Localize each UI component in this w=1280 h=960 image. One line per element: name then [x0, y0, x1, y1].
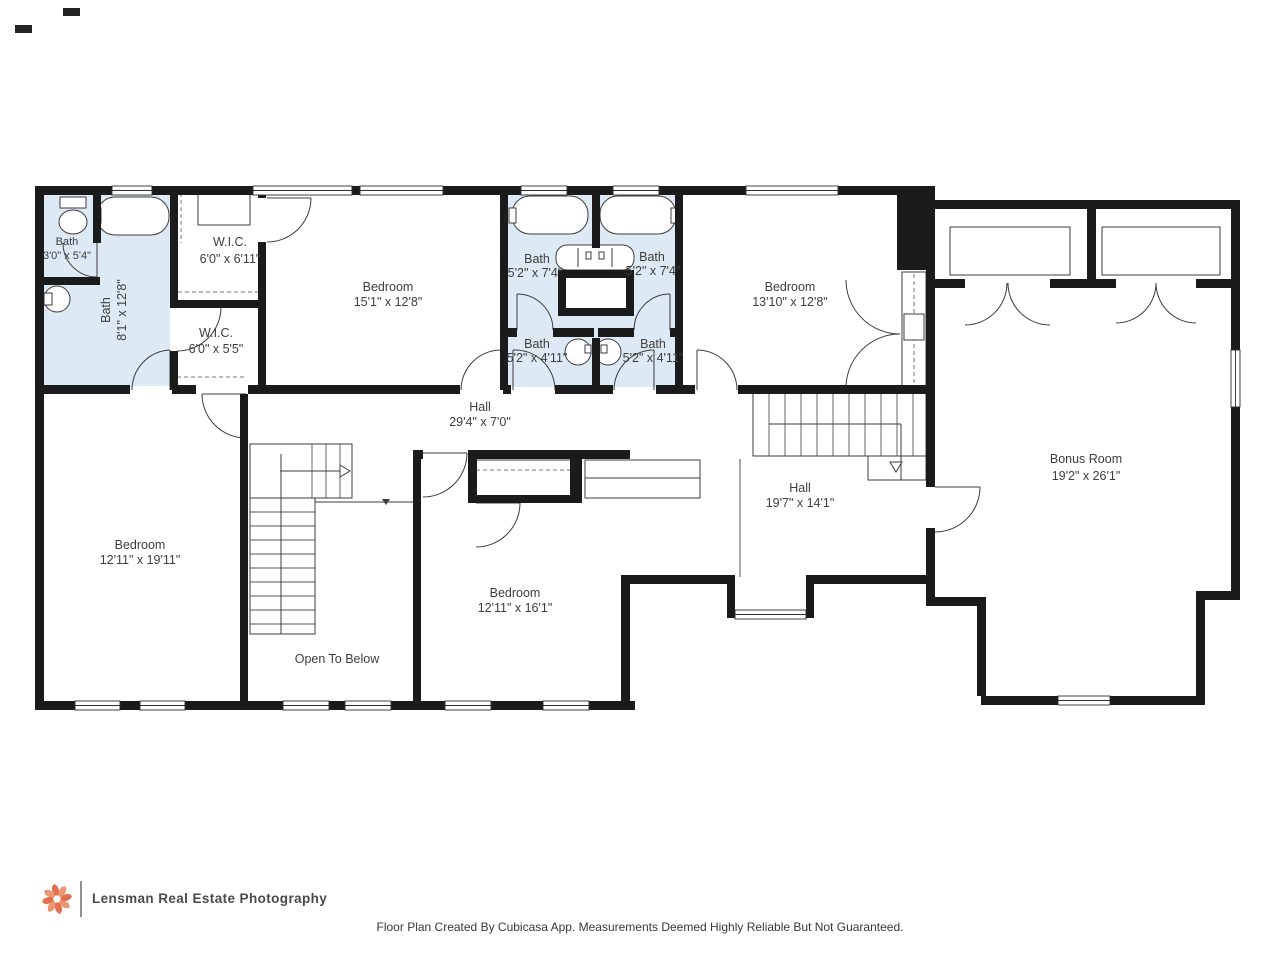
disclaimer-text: Floor Plan Created By Cubicasa App. Meas…	[0, 920, 1280, 934]
toilet-tank	[60, 197, 86, 208]
floor-plan: Bath 3'0" x 5'4" Bath 8'1" x 12'8" W.I.C…	[0, 0, 1280, 960]
toilet-bowl	[59, 210, 87, 234]
closet-shelf	[198, 193, 250, 225]
room-label-bath-lr-name: Bath	[640, 337, 666, 351]
window	[445, 701, 491, 710]
sink-faucet	[44, 293, 52, 305]
room-label-bath-lr-dims: 5'2" x 4'11"	[623, 351, 684, 365]
room-label-hall2-dims: 19'7" x 14'1"	[766, 496, 835, 510]
closet-shelf	[1102, 227, 1220, 275]
room-label-bonus-dims: 19'2" x 26'1"	[1052, 469, 1121, 483]
room-label-bath-ll-dims: 5'2" x 4'11"	[507, 351, 568, 365]
room-label-bedroom2-dims: 13'10" x 12'8"	[752, 295, 828, 309]
room-label-bonus-name: Bonus Room	[1050, 452, 1122, 466]
vanity	[556, 245, 634, 270]
closet	[474, 460, 572, 496]
room-label-open-to-below: Open To Below	[295, 652, 381, 666]
room-label-bath-ur-dims: 5'2" x 7'4"	[626, 264, 681, 278]
window	[360, 186, 443, 195]
stairs-up-arrow	[340, 465, 350, 477]
room-label-bedroom4-name: Bedroom	[490, 586, 541, 600]
bathtub	[600, 196, 676, 234]
room-label-bath-small-name: Bath	[56, 236, 79, 248]
room-label-bedroom3-name: Bedroom	[115, 538, 166, 552]
window	[75, 701, 120, 710]
room-label-bath-small-dims: 3'0" x 5'4"	[43, 250, 91, 262]
room-label-wic1-name: W.I.C.	[213, 235, 247, 249]
window	[543, 701, 589, 710]
room-label-bedroom3-dims: 12'11" x 19'11"	[100, 553, 181, 567]
room-label-hall2-name: Hall	[789, 481, 811, 495]
room-label-wic2-dims: 6'0" x 5'5"	[189, 342, 244, 356]
room-label-bedroom1-dims: 15'1" x 12'8"	[354, 295, 423, 309]
window	[253, 186, 352, 195]
window	[746, 186, 838, 195]
brand-name: Lensman Real Estate Photography	[92, 891, 327, 906]
bathtub	[97, 197, 169, 235]
window	[1058, 696, 1110, 705]
floor-plan-page: Bath 3'0" x 5'4" Bath 8'1" x 12'8" W.I.C…	[0, 0, 1280, 960]
window	[521, 186, 567, 195]
window	[283, 701, 329, 710]
window	[140, 701, 185, 710]
room-label-hall1-name: Hall	[469, 400, 491, 414]
room-label-bedroom1-name: Bedroom	[363, 280, 414, 294]
bathtub	[512, 196, 588, 234]
stairs-down-arrow	[890, 462, 902, 472]
window	[112, 186, 152, 195]
room-label-wic1-dims: 6'0" x 6'11"	[200, 252, 261, 266]
window	[735, 610, 806, 619]
window	[345, 701, 391, 710]
room-label-bath-ul-dims: 5'2" x 7'4"	[508, 266, 563, 280]
closet-shelf	[950, 227, 1070, 275]
room-label-bath-ll-name: Bath	[524, 337, 550, 351]
room-label-bath-ur-name: Bath	[639, 250, 665, 264]
corner-artifacts	[15, 8, 80, 33]
staircase-main	[753, 393, 926, 480]
room-label-wic2-name: W.I.C.	[199, 326, 233, 340]
room-label-bedroom2-name: Bedroom	[765, 280, 816, 294]
room-label-bath-ul-name: Bath	[524, 252, 550, 266]
window	[613, 186, 659, 195]
room-label-bath-big-dims: 8'1" x 12'8"	[115, 279, 129, 341]
room-label-bath-big-name: Bath	[99, 297, 113, 323]
room-label-bedroom4-dims: 12'11" x 16'1"	[478, 601, 553, 615]
footer-divider	[80, 881, 82, 917]
staircase-open-below	[250, 444, 413, 634]
window	[1231, 350, 1240, 407]
room-label-hall1-dims: 29'4" x 7'0"	[449, 415, 511, 429]
logo-icon	[42, 884, 72, 914]
